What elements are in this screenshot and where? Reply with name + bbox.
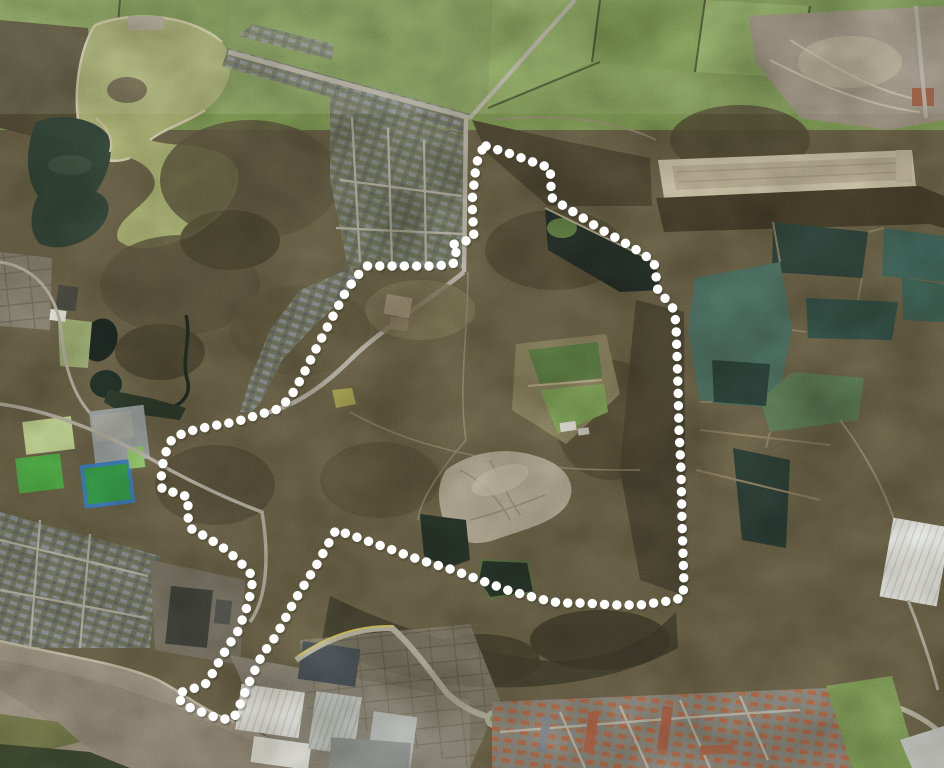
aerial-photo	[0, 0, 944, 768]
aerial-map-view	[0, 0, 944, 768]
photo-grain	[0, 0, 944, 768]
